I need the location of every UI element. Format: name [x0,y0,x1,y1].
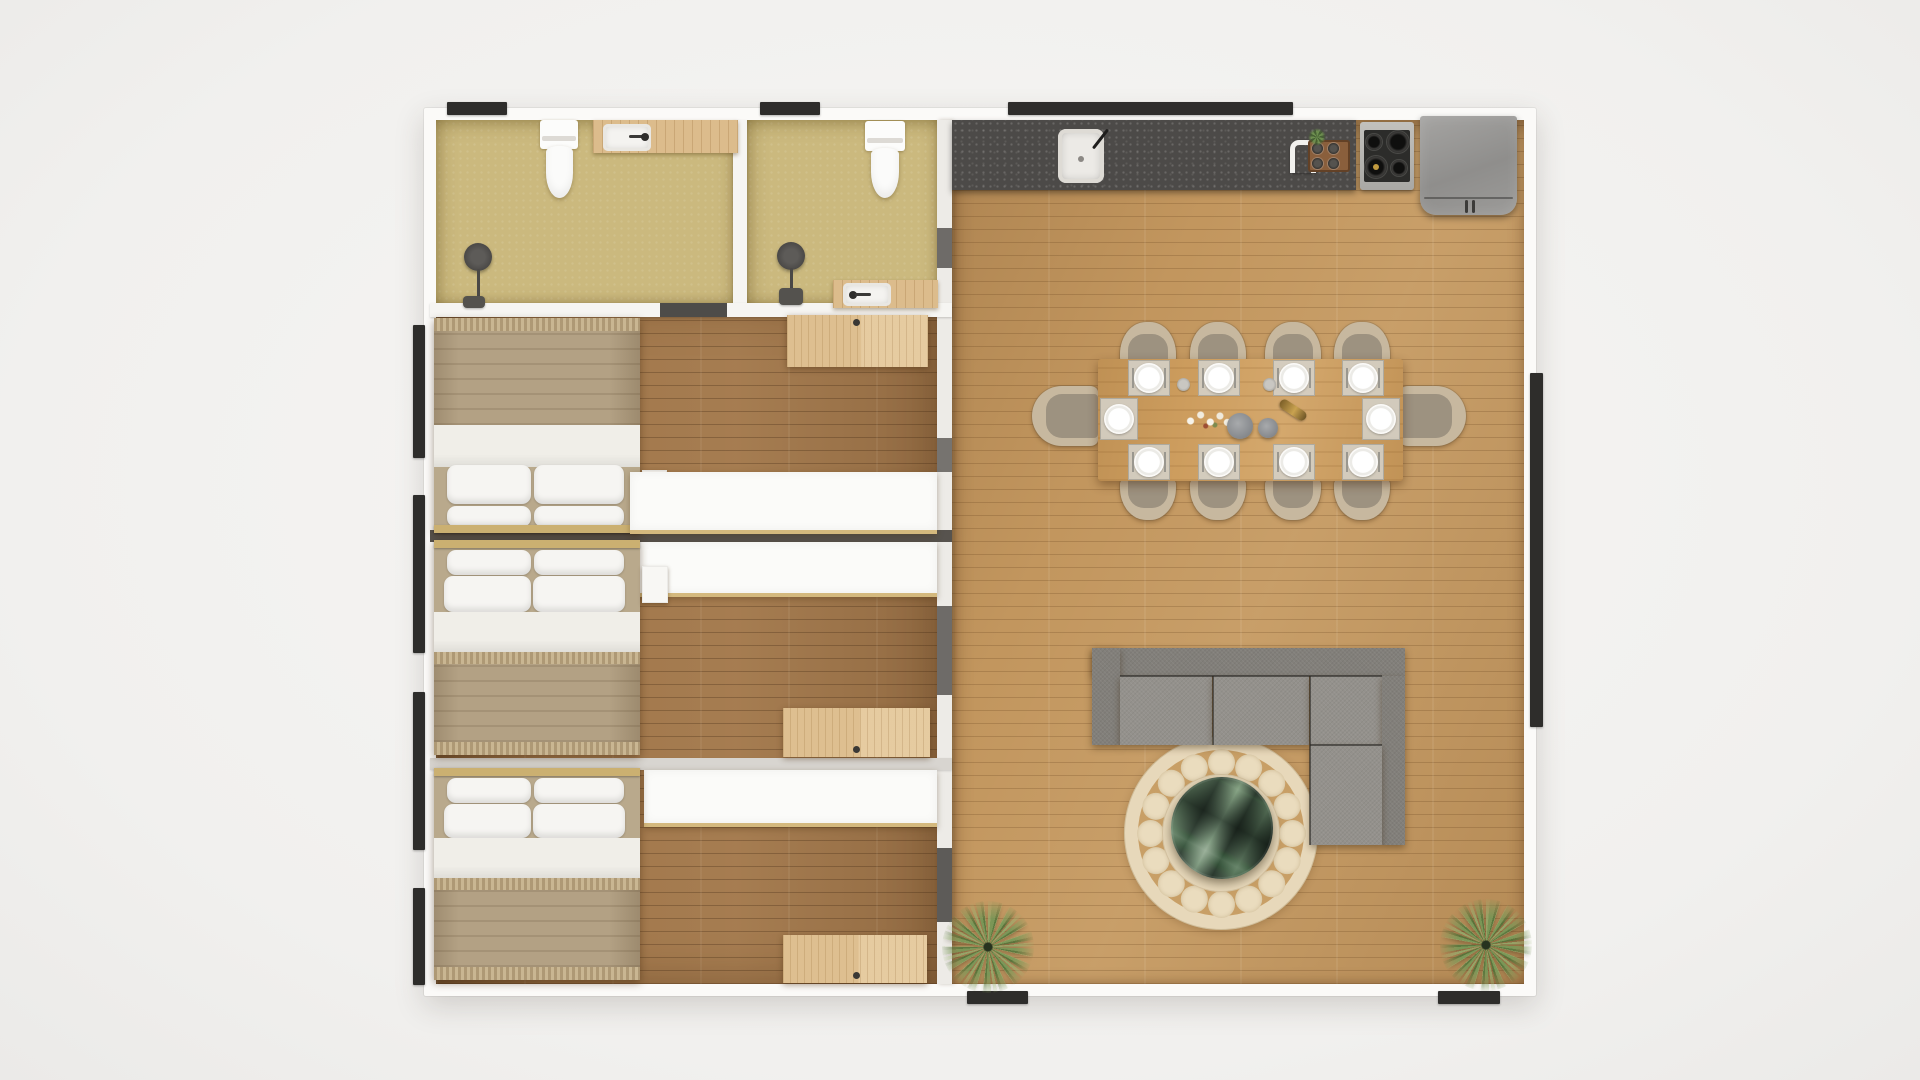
shower-base [779,288,803,305]
sofa-back [1092,648,1405,676]
floor-plant [1440,899,1532,991]
wall-segment [937,606,952,695]
page: { "document": { "title": "Apartment floo… [0,0,1920,1080]
plate-icon [1204,447,1234,477]
plate-icon [1348,363,1378,393]
dresser-knob-icon [853,319,860,326]
candle [1258,418,1278,438]
burner-icon [1387,131,1409,153]
pillow [533,576,625,612]
window-left [413,888,425,985]
dresser-knob-icon [853,746,860,753]
bed-bedroom-2 [434,540,640,755]
plate-icon [1134,363,1164,393]
fridge-handle-icon [1465,200,1468,213]
wall-segment [937,228,952,268]
dining-chair [1400,386,1466,446]
sofa-corner-seat [1310,676,1382,745]
bathroom-door-opening [660,303,727,317]
wall-segment [937,438,952,472]
plate-icon [1348,447,1378,477]
plate-icon [1279,447,1309,477]
place-setting [1342,444,1384,480]
window-right [1530,373,1543,727]
place-setting [1198,360,1240,396]
pillow [534,465,624,504]
floor-plan [424,108,1536,996]
pillow [534,778,624,803]
toilet [865,121,905,151]
candle [1227,413,1253,439]
bathroom-sink [843,283,891,306]
wardrobe [630,472,937,534]
pillow [444,804,531,838]
toilet-bowl [546,146,573,198]
window-left [413,692,425,850]
nightstand [642,566,668,603]
jar-icon [1328,143,1339,154]
window-top-kitchen [1008,102,1293,115]
sectional-sofa [1092,648,1405,845]
wall-segment [937,848,952,922]
wardrobe [644,770,937,827]
counter-plant [1308,128,1326,146]
place-setting [1273,360,1315,396]
plate-icon [1279,363,1309,393]
burner-icon [1366,134,1382,150]
plate-icon [1366,404,1396,434]
jar-icon [1328,158,1339,169]
shower-head-icon [464,243,492,271]
place-setting [1128,444,1170,480]
sofa-chaise [1310,745,1382,845]
pillow [533,804,625,838]
pillow [534,550,624,575]
place-setting [1198,444,1240,480]
cooktop [1360,122,1414,190]
small-cup [1177,378,1190,391]
place-setting [1273,444,1315,480]
floor-plant [942,901,1034,993]
bathroom-2-floor [747,120,937,303]
pillow [534,506,624,527]
dresser [783,708,930,757]
place-setting [1128,360,1170,396]
flower-sprigs [1185,410,1231,430]
sofa-arm-left [1092,648,1120,745]
wall-bedrooms-living [937,120,952,984]
door-opening-bottom [967,991,1028,1004]
dresser-knob-icon [853,972,860,979]
window-left [413,325,425,458]
faucet-handle-icon [641,133,649,141]
drain-icon [1078,156,1084,162]
pillow [444,576,531,612]
pillow [447,550,531,575]
dresser [787,315,928,367]
bed-bedroom-3 [434,768,640,980]
jar-icon [1312,158,1323,169]
sofa-arm-right [1382,676,1405,845]
bathroom-sink [603,124,651,151]
toilet [540,120,578,149]
place-setting [1362,398,1400,440]
dining-chair [1032,386,1098,446]
refrigerator [1420,116,1517,215]
pillow [447,506,531,527]
sofa-seat [1213,676,1309,745]
burner-icon [1391,160,1407,176]
place-setting [1100,398,1138,440]
door-opening-bottom [1438,991,1500,1004]
bed-bedroom-1 [434,318,640,533]
shower-head-icon [777,242,805,270]
dresser [783,935,927,983]
door-opening-top [760,102,820,115]
shower-base [463,296,485,308]
small-cup [1263,378,1276,391]
door-opening-top [447,102,507,115]
plate-icon [1204,363,1234,393]
sofa-seat [1120,676,1212,745]
kitchen-sink [1058,129,1104,183]
plate-icon [1104,404,1134,434]
faucet-icon [855,293,871,296]
pillow [447,465,531,504]
toilet-bowl [871,148,899,198]
pillow [447,778,531,803]
rug-pattern-circle [1208,891,1235,918]
wardrobe [630,542,937,597]
fridge-handle-icon [1472,200,1475,213]
plate-icon [1134,447,1164,477]
burner-icon [1365,156,1387,178]
window-left [413,495,425,653]
place-setting [1342,360,1384,396]
